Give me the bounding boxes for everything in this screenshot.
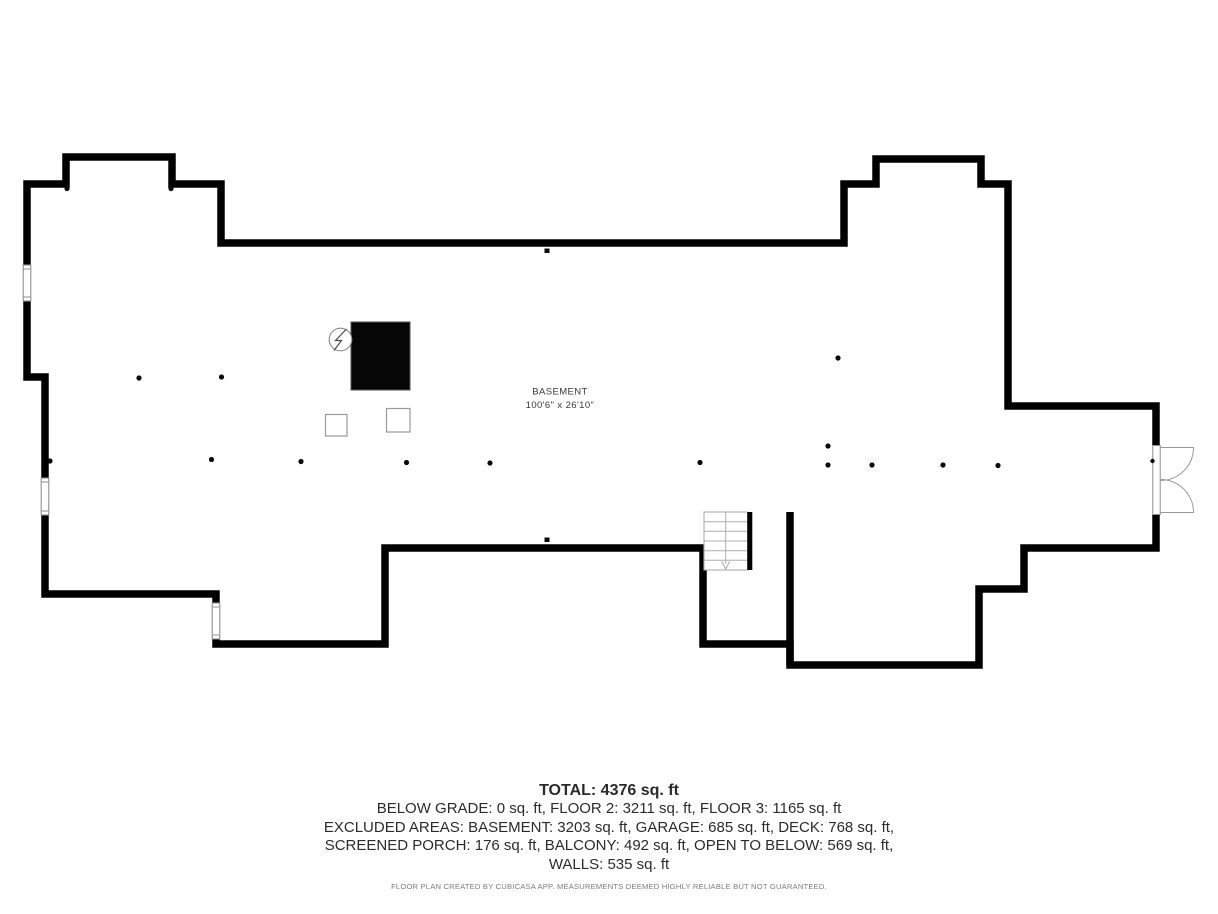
floorplan-page: BASEMENT 100'6" x 26'10" TOTAL: 4376 sq.… bbox=[0, 0, 1218, 914]
room-label: BASEMENT bbox=[532, 387, 587, 398]
chimney bbox=[351, 322, 410, 390]
area-line: SCREENED PORCH: 176 sq. ft, BALCONY: 492… bbox=[0, 837, 1218, 856]
window bbox=[212, 603, 220, 639]
area-summary: TOTAL: 4376 sq. ft BELOW GRADE: 0 sq. ft… bbox=[0, 781, 1218, 874]
room-dimensions: 100'6" x 26'10" bbox=[526, 400, 595, 411]
electrical-icon bbox=[329, 328, 352, 351]
window bbox=[41, 478, 49, 515]
door-frame bbox=[1153, 446, 1160, 515]
total-area: TOTAL: 4376 sq. ft bbox=[0, 781, 1218, 800]
staircase bbox=[704, 512, 750, 570]
disclaimer: FLOOR PLAN CREATED BY CUBICASA APP. MEAS… bbox=[0, 882, 1218, 891]
exterior-walls bbox=[27, 157, 1156, 665]
floorplan-drawing: BASEMENT 100'6" x 26'10" bbox=[0, 0, 1218, 914]
area-line: BELOW GRADE: 0 sq. ft, FLOOR 2: 3211 sq.… bbox=[0, 800, 1218, 819]
support-column bbox=[326, 415, 348, 437]
area-line: EXCLUDED AREAS: BASEMENT: 3203 sq. ft, G… bbox=[0, 819, 1218, 838]
area-line: WALLS: 535 sq. ft bbox=[0, 856, 1218, 875]
window bbox=[23, 265, 31, 301]
support-column bbox=[387, 409, 411, 433]
double-door bbox=[1153, 446, 1194, 515]
